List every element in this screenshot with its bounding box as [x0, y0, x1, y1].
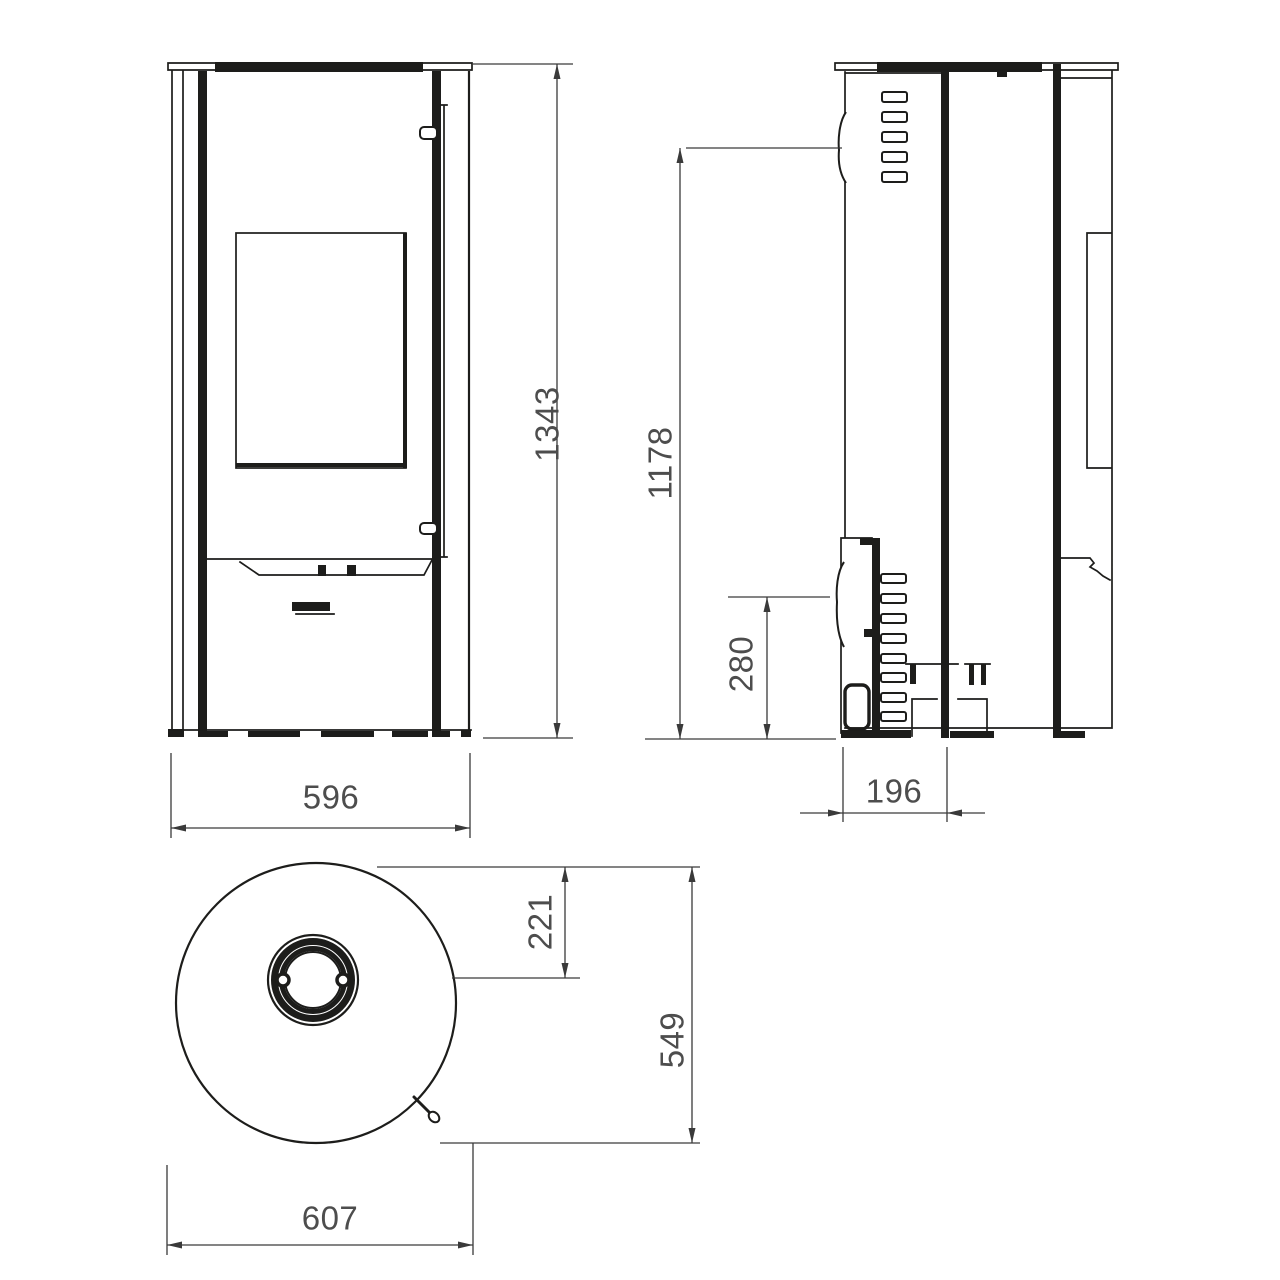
- dim-label-side-lower: 280: [723, 636, 760, 693]
- dim-total-depth: 549: [440, 867, 700, 1143]
- lower-vent-slots: [881, 574, 906, 721]
- arrow-down-icon: [554, 723, 561, 738]
- side-front-bracket-lower: [837, 562, 844, 647]
- arrow-down-icon: [677, 724, 684, 739]
- front-door-edge: [441, 105, 447, 557]
- stove-dimension-drawing: 1343 1178 280 596 196 221 549: [0, 0, 1280, 1280]
- air-intake-opening: [845, 685, 869, 729]
- vent-slot: [881, 712, 906, 721]
- front-side-panels: [172, 71, 183, 730]
- arrow-up-icon: [554, 64, 561, 79]
- flue-lug-left: [277, 974, 289, 986]
- dim-label-flue-offset: 221: [522, 894, 559, 951]
- arrow-down-icon: [764, 724, 771, 739]
- door-handle-lower: [420, 523, 437, 534]
- vent-slot: [881, 594, 906, 603]
- side-view: [835, 62, 1118, 738]
- vent-slot: [881, 673, 906, 682]
- door-handle-top-view: [414, 1097, 431, 1114]
- flue-collar: [268, 935, 358, 1025]
- vent-slot: [881, 654, 906, 663]
- vent-slot: [882, 132, 907, 142]
- arrow-right-icon: [828, 810, 843, 817]
- front-base-lines: [172, 559, 471, 730]
- arrow-up-icon: [689, 867, 696, 882]
- side-black-parts: [841, 62, 1085, 738]
- door-handle-upper: [420, 127, 437, 139]
- dim-top-width: 607: [167, 1143, 473, 1255]
- front-view: [168, 62, 472, 737]
- dim-flue-offset: 221: [377, 867, 700, 978]
- vent-slot: [882, 92, 907, 102]
- vent-slot: [882, 172, 907, 182]
- arrow-down-icon: [562, 963, 569, 978]
- arrow-right-icon: [455, 825, 470, 832]
- vent-slot: [882, 152, 907, 162]
- flue-lug-right: [337, 974, 349, 986]
- dim-label-total-depth: 549: [654, 1012, 691, 1069]
- dim-label-front-width: 596: [303, 779, 360, 816]
- top-view: [176, 863, 456, 1143]
- arrow-up-icon: [677, 148, 684, 163]
- dim-label-door-depth: 196: [866, 773, 923, 810]
- vent-slot: [882, 112, 907, 122]
- dim-height-total: 1343: [472, 64, 573, 738]
- vent-slot: [881, 634, 906, 643]
- flue-opening: [285, 952, 341, 1008]
- arrow-right-icon: [458, 1242, 473, 1249]
- dim-front-width: 596: [171, 753, 470, 838]
- dim-side-lower-height: 280: [723, 597, 831, 739]
- vent-slot: [881, 574, 906, 583]
- arrow-down-icon: [689, 1128, 696, 1143]
- dimension-drawing-page: 1343 1178 280 596 196 221 549: [0, 0, 1280, 1280]
- arrow-left-icon: [167, 1242, 182, 1249]
- vent-slot: [881, 693, 906, 702]
- dim-lines: [440, 867, 700, 1143]
- dim-door-section-depth: 196: [800, 747, 985, 822]
- arrow-up-icon: [562, 867, 569, 882]
- top-vent-slots: [882, 92, 907, 182]
- front-black-parts: [168, 62, 471, 737]
- arrow-left-icon: [947, 810, 962, 817]
- dim-label-rear-upper: 1178: [642, 427, 679, 500]
- arrow-left-icon: [171, 825, 186, 832]
- dim-label-height-total: 1343: [529, 386, 566, 461]
- vent-slot: [881, 614, 906, 623]
- dim-label-top-width: 607: [302, 1200, 359, 1237]
- door-glass-window: [236, 233, 406, 468]
- arrow-up-icon: [764, 597, 771, 612]
